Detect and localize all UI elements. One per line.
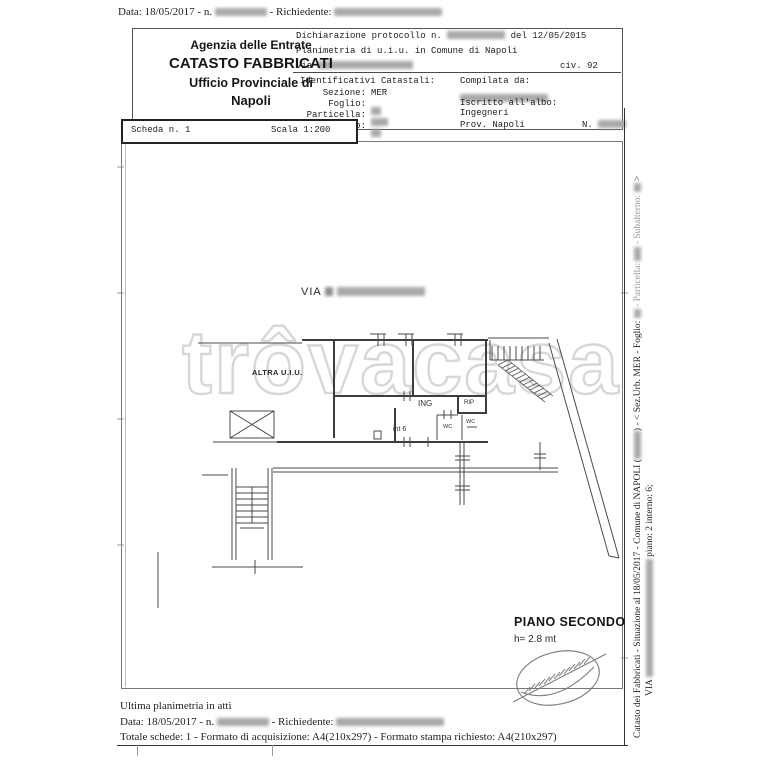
bottom-tick-left [137, 745, 138, 756]
albo-label: Iscritto all'albo: [460, 98, 557, 108]
footer-date-label: Data: 18/05/2017 - n. [120, 716, 214, 728]
bottom-tick-mid [272, 745, 273, 756]
plan-sheet-border [121, 141, 623, 689]
bottom-rule [117, 745, 628, 746]
scheda-number: Scheda n. 1 [131, 125, 190, 135]
wc-label-b: WC [466, 419, 475, 425]
redacted-side-particella [634, 247, 641, 261]
top-request-line: Data: 18/05/2017 - n. - Richiedente: [118, 6, 442, 18]
redacted-declaration-number [447, 31, 505, 39]
agency-block: Agenzia delle Entrate CATASTO FABBRICATI… [140, 36, 362, 110]
wc-label-a: WC [443, 424, 452, 430]
outer-right-border [624, 108, 625, 745]
top-richiedente-label: - Richiedente: [270, 6, 332, 18]
prov-label: Prov. Napoli [460, 120, 525, 130]
rip-label: RIP [464, 400, 474, 406]
redacted-richiedente [334, 8, 442, 16]
redacted-side-subalterno [634, 183, 641, 192]
n-label: N. [582, 120, 626, 130]
side-line1: Catasto dei Fabbricati - Situazione al 1… [633, 176, 643, 738]
redacted-side-foglio [634, 309, 641, 318]
compilata-label: Compilata da: [460, 76, 530, 86]
street-via-text: VIA [301, 286, 321, 298]
redacted-protocol-number [215, 8, 267, 16]
city-line: Napoli [140, 92, 362, 110]
declaration-date: del 12/05/2015 [511, 31, 587, 41]
street-label: VIA [301, 286, 425, 298]
redacted-side-street [646, 559, 653, 677]
side-text: Catasto dei Fabbricati - Situazione al 1… [632, 48, 656, 738]
ing-label: ING [418, 399, 432, 408]
scheda-bar: Scheda n. 1 Scala 1:200 [121, 119, 358, 144]
agency-name: Agenzia delle Entrate [140, 36, 362, 54]
redacted-footer-richiedente [336, 718, 444, 726]
int6-label: int 6 [393, 426, 406, 433]
sezione-value: MER [371, 88, 387, 98]
side-text-wrapper: Catasto dei Fabbricati - Situazione al 1… [632, 738, 768, 762]
ultima-planimetria-line: Ultima planimetria in atti [120, 700, 232, 712]
ufficio-line: Ufficio Provinciale di [140, 74, 362, 92]
redacted-footer-number [217, 718, 269, 726]
side-line2: VIA piano: 2 interno: 6; [644, 48, 656, 738]
redacted-albo-number [598, 120, 626, 128]
albo-value: Ingegneri [460, 108, 509, 118]
redacted-comune-code [634, 431, 641, 459]
cadastral-plan-document: trôvacasa Data: 18/05/2017 - n. - Richie… [0, 0, 768, 768]
redacted-street-name-plan [337, 287, 425, 296]
redacted-subalterno [371, 123, 381, 141]
footer-richiedente-label: - Richiedente: [272, 716, 334, 728]
redacted-street-initial [325, 287, 333, 296]
footer-data-line: Data: 18/05/2017 - n. - Richiedente: [120, 716, 444, 728]
plan-sheet-border-inner [125, 141, 126, 687]
top-date-label: Data: 18/05/2017 - n. [118, 6, 212, 18]
civ-number: civ. 92 [560, 61, 598, 71]
catasto-title: CATASTO FABBRICATI [140, 54, 362, 74]
altra-uiu-label: ALTRA U.I.U. [252, 368, 303, 377]
piano-secondo-label: PIANO SECONDO [514, 615, 625, 629]
scala-value: Scala 1:200 [271, 125, 330, 135]
altezza-label: h= 2.8 mt [514, 634, 556, 645]
totale-schede-line: Totale schede: 1 - Formato di acquisizio… [120, 731, 557, 743]
